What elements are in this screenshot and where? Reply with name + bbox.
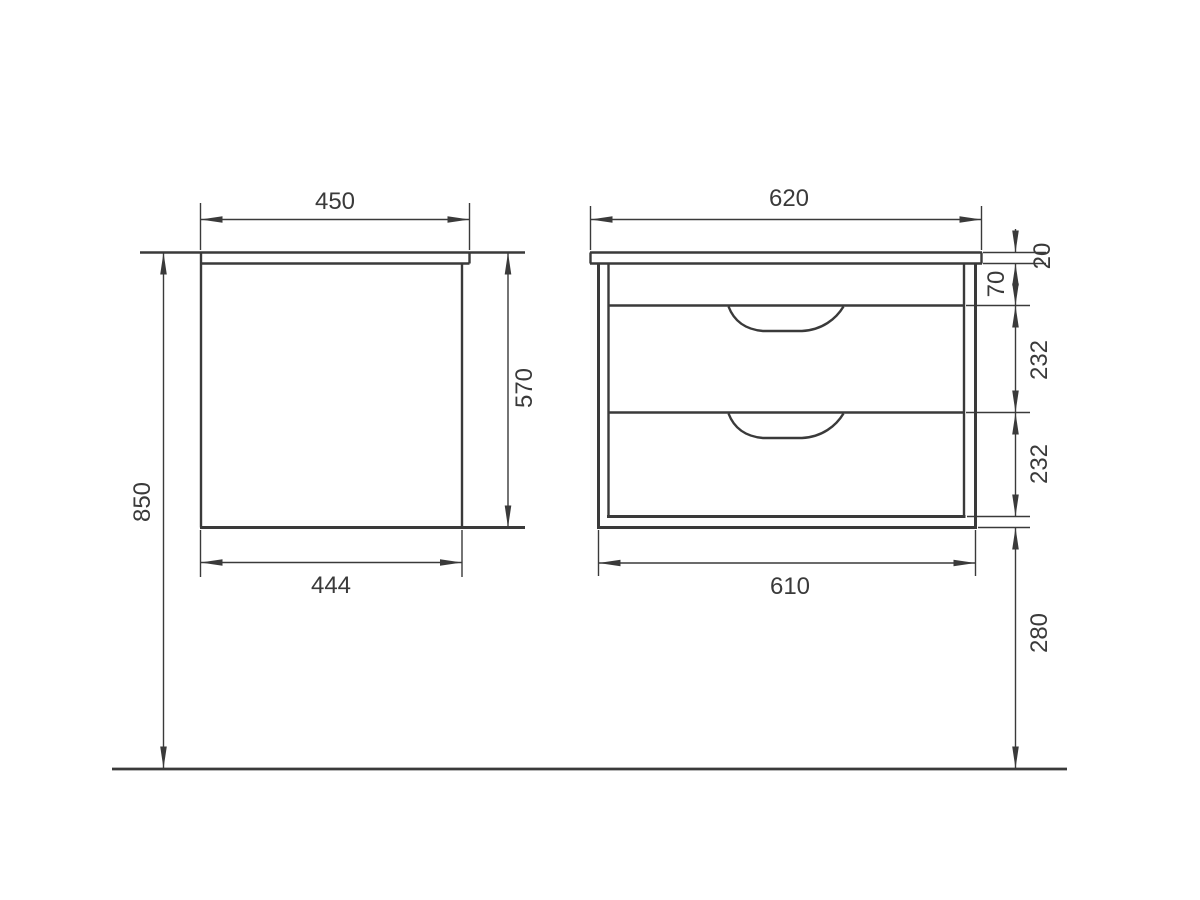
drawer-2-handle: [729, 414, 844, 439]
dim-620-extension-lines: [591, 206, 982, 250]
front-view: [590, 253, 982, 528]
dim-232-lower: 232: [1016, 413, 1054, 517]
dim-450-label: 450: [315, 188, 355, 215]
dim-232-lower-label: 232: [1026, 444, 1053, 484]
dim-20-label: 20: [1029, 243, 1056, 270]
dim-444: 444: [201, 530, 463, 599]
dim-610: 610: [599, 530, 976, 600]
side-view: [140, 253, 525, 528]
dim-280-label: 280: [1026, 613, 1053, 653]
front-view-outer-frame: [597, 264, 977, 528]
dim-70-label: 70: [983, 271, 1010, 298]
dim-444-label: 444: [311, 572, 351, 599]
dim-620: 620: [591, 185, 982, 250]
dim-850-label: 850: [129, 482, 156, 522]
front-view-countertop: [590, 253, 982, 264]
dim-444-extension-lines: [201, 530, 463, 577]
dim-280: 280: [1016, 528, 1054, 769]
drawer-1-handle: [729, 307, 844, 332]
dim-610-label: 610: [770, 573, 810, 600]
dim-232-upper-label: 232: [1026, 340, 1053, 380]
dim-570-label: 570: [511, 368, 538, 408]
dim-570: 570: [508, 253, 538, 528]
dim-70: 70: [983, 264, 1016, 306]
vanity-dimension-drawing: 450 444 850 570 620 610: [0, 0, 1200, 900]
dim-850: 850: [129, 253, 164, 769]
dim-610-extension-lines: [599, 530, 976, 576]
front-view-inner-frame: [609, 264, 965, 516]
dim-232-upper: 232: [1016, 306, 1054, 413]
right-dimension-chain: 20 70 232 232 280: [966, 229, 1056, 769]
technical-drawing-page: 450 444 850 570 620 610: [0, 0, 1200, 900]
dim-450: 450: [201, 188, 470, 250]
dim-620-label: 620: [769, 185, 809, 212]
